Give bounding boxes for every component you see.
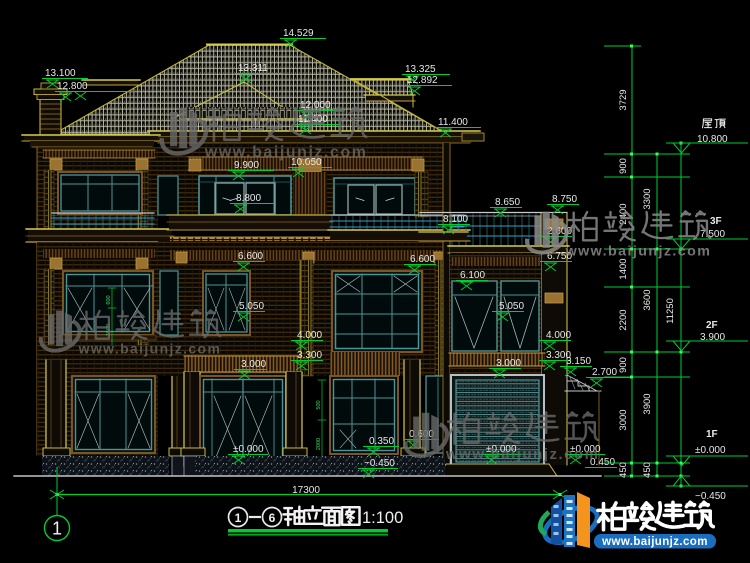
svg-text:3900: 3900 (642, 393, 653, 414)
svg-text:14.529: 14.529 (283, 28, 314, 39)
svg-text:1: 1 (52, 519, 62, 539)
svg-text:www.baijunjz.com: www.baijunjz.com (565, 244, 712, 260)
svg-text:www.baijunjz.com: www.baijunjz.com (78, 341, 222, 357)
svg-text:3729: 3729 (618, 89, 629, 110)
svg-text:900: 900 (618, 357, 629, 373)
svg-text:600: 600 (106, 295, 112, 304)
svg-text:17300: 17300 (292, 485, 320, 496)
svg-text:13.311: 13.311 (238, 63, 268, 74)
svg-text:450: 450 (618, 462, 629, 478)
svg-text:3600: 3600 (642, 289, 653, 310)
svg-text:12.892: 12.892 (407, 75, 438, 86)
svg-text:500: 500 (316, 400, 322, 409)
svg-text:8.650: 8.650 (495, 197, 520, 208)
svg-text:www.baijunjz.com: www.baijunjz.com (204, 144, 368, 161)
svg-text:13.325: 13.325 (405, 64, 436, 75)
svg-text:900: 900 (618, 158, 629, 174)
svg-text:8.100: 8.100 (443, 214, 468, 225)
svg-text:2.700: 2.700 (592, 367, 617, 378)
svg-text:11.400: 11.400 (438, 117, 468, 128)
svg-text:5.050: 5.050 (239, 301, 264, 312)
svg-text:3.150: 3.150 (566, 356, 591, 367)
svg-text:9.900: 9.900 (234, 160, 259, 171)
svg-text:1:100: 1:100 (362, 509, 403, 527)
svg-text:±0.000: ±0.000 (233, 444, 264, 455)
svg-text:12.000: 12.000 (300, 100, 331, 111)
svg-text:10.800: 10.800 (697, 134, 728, 145)
svg-text:3.300: 3.300 (297, 350, 322, 361)
svg-text:www.baijunjz.com: www.baijunjz.com (601, 536, 708, 548)
svg-text:2F: 2F (706, 320, 718, 331)
svg-text:3000: 3000 (618, 409, 629, 430)
svg-text:4.000: 4.000 (297, 330, 322, 341)
svg-text:0.600: 0.600 (409, 429, 434, 440)
svg-text:6.600: 6.600 (410, 254, 435, 265)
svg-text:1400: 1400 (618, 258, 629, 279)
svg-text:−0.450: −0.450 (695, 491, 726, 502)
svg-text:8.800: 8.800 (236, 193, 261, 204)
svg-text:1: 1 (235, 511, 242, 525)
svg-text:13.100: 13.100 (45, 68, 76, 79)
svg-text:5.050: 5.050 (499, 301, 524, 312)
svg-text:3.000: 3.000 (496, 358, 521, 369)
svg-text:2200: 2200 (618, 309, 629, 330)
svg-text:12.800: 12.800 (57, 81, 88, 92)
svg-text:11250: 11250 (665, 298, 676, 324)
svg-text:3.000: 3.000 (241, 359, 266, 370)
svg-text:3F: 3F (710, 216, 722, 227)
svg-text:www.baijunjz.com: www.baijunjz.com (445, 446, 599, 463)
svg-text:0.350: 0.350 (369, 436, 394, 447)
svg-text:4.000: 4.000 (546, 330, 571, 341)
svg-text:6: 6 (269, 511, 276, 525)
svg-text:8.750: 8.750 (552, 194, 577, 205)
svg-text:6.100: 6.100 (460, 270, 485, 281)
svg-text:3300: 3300 (642, 188, 653, 209)
svg-text:3.900: 3.900 (700, 332, 725, 343)
svg-text:±0.000: ±0.000 (695, 445, 726, 456)
svg-text:6.600: 6.600 (238, 251, 263, 262)
svg-text:450: 450 (642, 462, 653, 478)
svg-text:2000: 2000 (316, 438, 322, 450)
svg-text:1F: 1F (706, 429, 718, 440)
svg-text:−0.450: −0.450 (364, 458, 395, 469)
